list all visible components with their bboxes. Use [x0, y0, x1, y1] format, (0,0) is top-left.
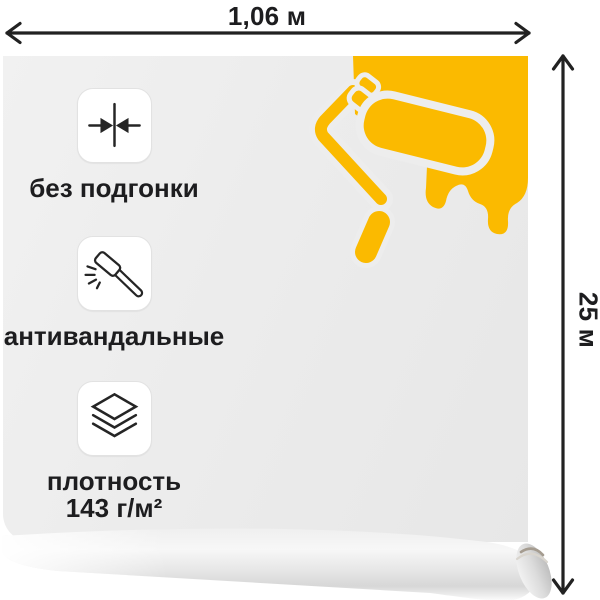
feature-anti-vandal: антивандальные	[0, 236, 228, 350]
width-dimension-arrow	[0, 0, 600, 50]
paint-roller-illustration	[300, 50, 540, 286]
product-image: 1,06 м 25 м	[0, 0, 600, 600]
feature-label: без подгонки	[0, 175, 228, 202]
icon-box	[77, 88, 152, 163]
icon-box	[77, 236, 152, 311]
layers-icon	[78, 381, 151, 456]
icon-box	[77, 381, 152, 456]
feature-label: плотность	[0, 468, 228, 495]
feature-no-matching: без подгонки	[0, 88, 228, 202]
feature-label-value: 143 г/м²	[0, 495, 228, 522]
feature-density: плотность 143 г/м²	[0, 381, 228, 522]
hammer-icon	[78, 236, 151, 311]
feature-label: антивандальные	[0, 323, 228, 350]
converging-arrows-icon	[78, 88, 151, 163]
